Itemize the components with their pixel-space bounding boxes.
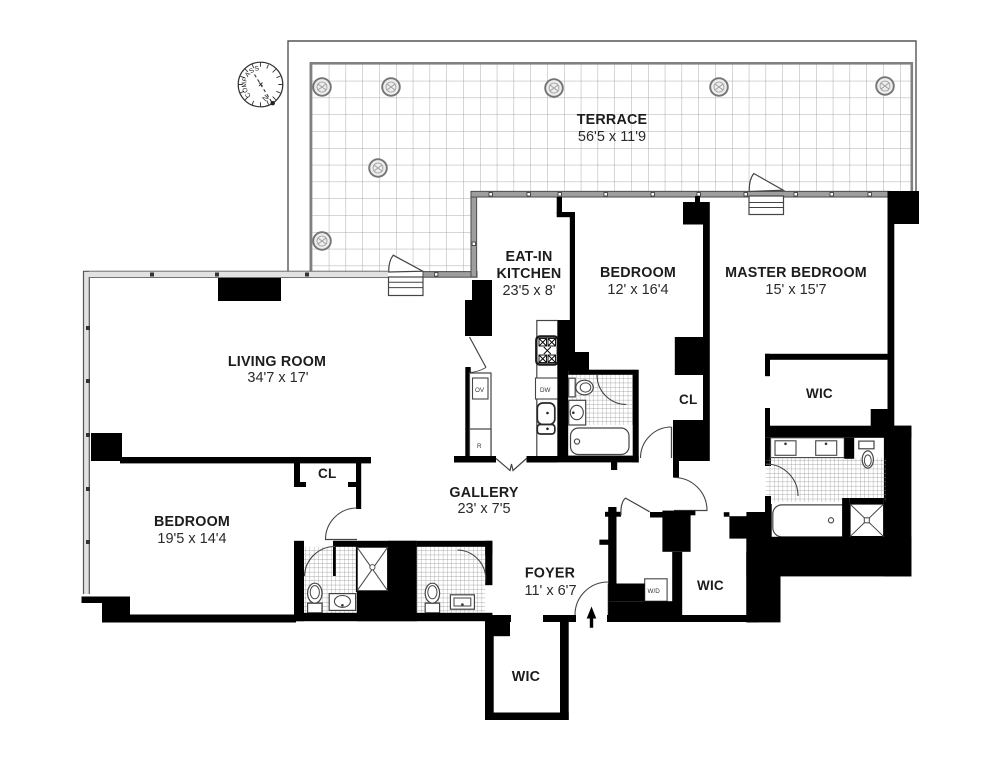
svg-text:BEDROOM: BEDROOM	[600, 265, 676, 281]
svg-text:15' x 15'7: 15' x 15'7	[765, 282, 826, 298]
svg-text:GALLERY: GALLERY	[449, 485, 518, 501]
svg-text:12' x 16'4: 12' x 16'4	[607, 282, 668, 298]
svg-text:56'5 x 11'9: 56'5 x 11'9	[578, 129, 646, 145]
svg-text:DW: DW	[540, 387, 551, 394]
svg-text:11' x 6'7: 11' x 6'7	[524, 583, 576, 599]
svg-text:OV: OV	[475, 387, 485, 394]
svg-text:EAT-IN: EAT-IN	[505, 249, 552, 265]
svg-text:TERRACE: TERRACE	[577, 112, 648, 128]
svg-text:WIC: WIC	[512, 669, 540, 685]
svg-text:KITCHEN: KITCHEN	[497, 266, 562, 282]
svg-text:23' x 7'5: 23' x 7'5	[457, 501, 510, 517]
svg-text:CL: CL	[679, 392, 697, 407]
svg-text:W/D: W/D	[648, 588, 661, 595]
svg-text:WIC: WIC	[806, 386, 833, 401]
svg-text:23'5 x 8': 23'5 x 8'	[502, 283, 555, 299]
svg-text:R: R	[477, 443, 482, 450]
svg-text:34'7 x 17': 34'7 x 17'	[247, 370, 308, 386]
svg-text:CL: CL	[318, 466, 336, 481]
svg-text:WIC: WIC	[697, 578, 724, 593]
svg-text:BEDROOM: BEDROOM	[154, 514, 230, 530]
svg-text:19'5 x 14'4: 19'5 x 14'4	[157, 531, 226, 547]
svg-text:LIVING ROOM: LIVING ROOM	[228, 354, 326, 370]
svg-text:FOYER: FOYER	[525, 566, 576, 582]
svg-text:MASTER BEDROOM: MASTER BEDROOM	[725, 265, 867, 281]
